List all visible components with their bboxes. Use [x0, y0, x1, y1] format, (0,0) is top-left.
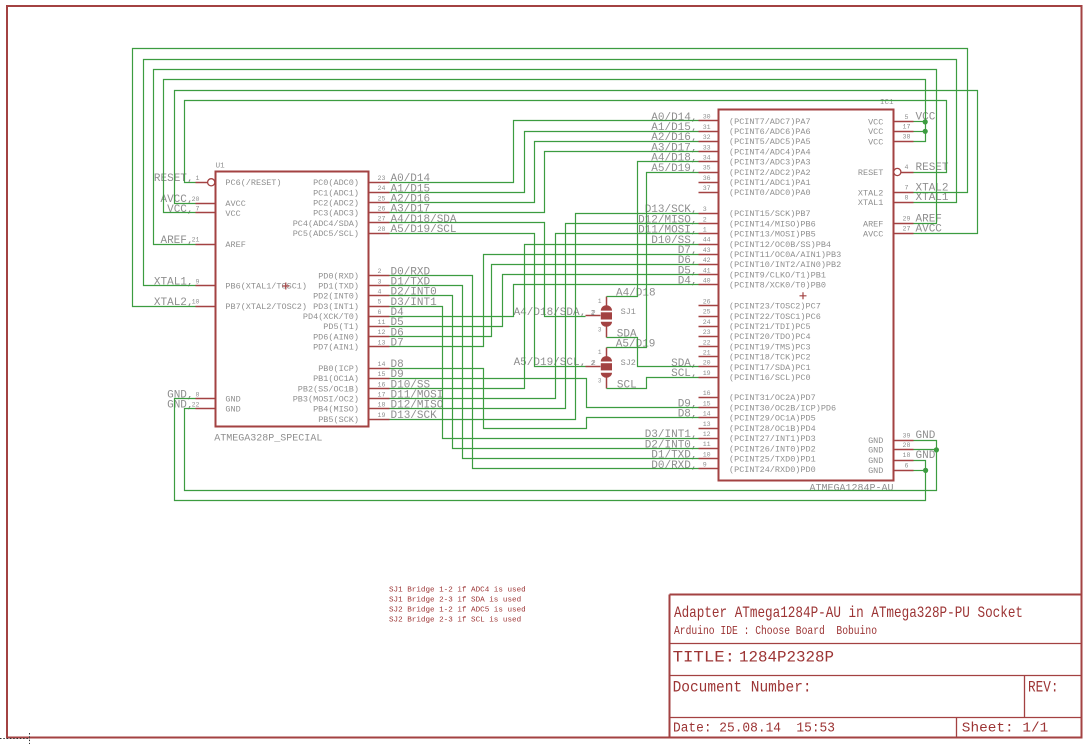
svg-text:24: 24	[378, 185, 386, 192]
svg-text:PD2(INT0): PD2(INT0)	[313, 292, 359, 302]
svg-text:Date: 25.08.14 15:53: Date: 25.08.14 15:53	[673, 722, 835, 737]
svg-text:PC3(ADC3): PC3(ADC3)	[313, 209, 359, 219]
svg-text:Sheet: 1/1: Sheet: 1/1	[962, 722, 1049, 737]
svg-text:26: 26	[703, 299, 711, 306]
svg-text:(PCINT29/OC1A)PD5: (PCINT29/OC1A)PD5	[729, 414, 816, 424]
svg-text:RESET,: RESET,	[154, 173, 194, 185]
svg-text:VCC: VCC	[868, 137, 883, 147]
svg-text:(PCINT2/ADC2)PA2: (PCINT2/ADC2)PA2	[729, 168, 811, 178]
svg-text:2: 2	[703, 216, 707, 223]
svg-text:28: 28	[378, 226, 386, 233]
svg-text:XTAL2: XTAL2	[858, 188, 884, 198]
svg-text:22: 22	[703, 339, 711, 346]
svg-text:VCC: VCC	[868, 127, 883, 137]
svg-text:12: 12	[378, 329, 386, 336]
svg-text:(PCINT0/ADC0)PA0: (PCINT0/ADC0)PA0	[729, 188, 811, 198]
svg-text:A4/D18: A4/D18	[616, 287, 656, 299]
svg-text:SJ2 Bridge 2-3 if SCL is used: SJ2 Bridge 2-3 if SCL is used	[389, 616, 521, 624]
svg-text:13: 13	[703, 421, 711, 428]
svg-text:24: 24	[703, 319, 711, 326]
svg-text:(PCINT22/TOSC1)PC6: (PCINT22/TOSC1)PC6	[729, 312, 821, 322]
svg-text:34: 34	[703, 155, 711, 162]
svg-text:28: 28	[903, 442, 911, 449]
svg-text:11: 11	[703, 441, 711, 448]
svg-text:16: 16	[378, 381, 386, 388]
svg-text:5: 5	[905, 114, 909, 121]
svg-text:(PCINT8/XCK0/T0)PB0: (PCINT8/XCK0/T0)PB0	[729, 281, 826, 291]
svg-text:6: 6	[905, 462, 909, 469]
svg-text:(PCINT23/TOSC2)PC7: (PCINT23/TOSC2)PC7	[729, 302, 821, 312]
svg-text:GND: GND	[868, 456, 883, 466]
svg-text:44: 44	[703, 237, 711, 244]
svg-text:43: 43	[703, 247, 711, 254]
svg-text:2: 2	[592, 310, 596, 318]
svg-text:SCL,: SCL,	[671, 368, 697, 380]
svg-text:(PCINT10/INT2/AIN0)PB2: (PCINT10/INT2/AIN0)PB2	[729, 260, 841, 270]
svg-text:D4,: D4,	[678, 276, 698, 288]
svg-text:PD7(AIN1): PD7(AIN1)	[313, 343, 359, 353]
svg-text:PB3(MOSI/OC2): PB3(MOSI/OC2)	[293, 395, 359, 405]
svg-text:PB6(XTAL1/TOSC1): PB6(XTAL1/TOSC1)	[225, 282, 307, 292]
svg-text:XTAL1: XTAL1	[858, 198, 884, 208]
svg-text:11: 11	[378, 319, 386, 326]
svg-text:D0/RXD,: D0/RXD,	[651, 460, 697, 472]
svg-text:ATMEGA1284P-AU: ATMEGA1284P-AU	[809, 484, 893, 495]
svg-text:3: 3	[378, 278, 382, 285]
svg-text:13: 13	[378, 339, 386, 346]
svg-text:Document Number:: Document Number:	[673, 679, 812, 697]
svg-text:D7: D7	[391, 338, 404, 350]
svg-text:PC0(ADC0): PC0(ADC0)	[313, 178, 359, 188]
svg-text:23: 23	[703, 329, 711, 336]
svg-text:31: 31	[703, 124, 711, 131]
svg-text:1: 1	[598, 298, 602, 305]
svg-text:U1: U1	[216, 163, 226, 171]
svg-text:(PCINT9/CLKO/T1)PB1: (PCINT9/CLKO/T1)PB1	[729, 270, 826, 280]
svg-text:(PCINT6/ADC6)PA6: (PCINT6/ADC6)PA6	[729, 127, 811, 137]
svg-text:19: 19	[703, 370, 711, 377]
svg-text:PC4(ADC4/SDA): PC4(ADC4/SDA)	[293, 219, 359, 229]
svg-text:PC1(ADC1): PC1(ADC1)	[313, 188, 359, 198]
svg-text:SJ2 Bridge 1-2 if ADC5 is used: SJ2 Bridge 1-2 if ADC5 is used	[389, 606, 526, 614]
svg-text:5: 5	[378, 299, 382, 306]
svg-text:4: 4	[378, 289, 382, 296]
svg-text:PD5(T1): PD5(T1)	[323, 322, 359, 332]
svg-text:GND: GND	[225, 405, 240, 415]
svg-text:36: 36	[703, 175, 711, 182]
svg-text:VCC,: VCC,	[167, 204, 193, 216]
svg-text:SJ2: SJ2	[621, 358, 636, 368]
svg-text:10: 10	[703, 452, 711, 459]
svg-text:(PCINT26/INT0)PD2: (PCINT26/INT0)PD2	[729, 444, 816, 454]
svg-text:PD4(XCK/T0): PD4(XCK/T0)	[303, 312, 359, 322]
svg-text:19: 19	[378, 412, 386, 419]
svg-text:XTAL1,: XTAL1,	[154, 277, 194, 289]
svg-text:12: 12	[703, 431, 711, 438]
svg-text:PB4(MISO): PB4(MISO)	[313, 405, 359, 415]
svg-text:PB0(ICP): PB0(ICP)	[318, 364, 359, 374]
svg-text:PC5(ADC5/SCL): PC5(ADC5/SCL)	[293, 229, 359, 239]
svg-text:(PCINT1/ADC1)PA1: (PCINT1/ADC1)PA1	[729, 178, 811, 188]
svg-text:27: 27	[903, 226, 911, 233]
svg-text:PD0(RXD): PD0(RXD)	[318, 271, 359, 281]
svg-text:16: 16	[703, 390, 711, 397]
svg-text:PD1(TXD): PD1(TXD)	[318, 282, 359, 292]
svg-text:3: 3	[598, 327, 602, 334]
svg-text:GND: GND	[868, 436, 883, 446]
svg-text:9: 9	[196, 278, 200, 285]
svg-text:(PCINT30/OC2B/ICP)PD6: (PCINT30/OC2B/ICP)PD6	[729, 404, 836, 414]
svg-text:TITLE:: TITLE:	[673, 649, 736, 667]
svg-text:1: 1	[598, 349, 602, 356]
svg-text:(PCINT25/TXD0)PD1: (PCINT25/TXD0)PD1	[729, 455, 816, 465]
svg-text:17: 17	[903, 123, 911, 130]
svg-text:29: 29	[903, 216, 911, 223]
svg-text:ATMEGA328P_SPECIAL: ATMEGA328P_SPECIAL	[214, 434, 322, 445]
svg-text:39: 39	[903, 432, 911, 439]
svg-text:(PCINT14/MISO)PB6: (PCINT14/MISO)PB6	[729, 219, 816, 229]
svg-text:38: 38	[903, 134, 911, 141]
svg-text:PB1(OC1A): PB1(OC1A)	[313, 374, 359, 384]
svg-text:3: 3	[703, 206, 707, 213]
svg-text:(PCINT18/TCK)PC2: (PCINT18/TCK)PC2	[729, 353, 811, 363]
svg-text:GND: GND	[868, 466, 883, 476]
svg-text:40: 40	[703, 278, 711, 285]
svg-text:SJ1: SJ1	[621, 307, 636, 317]
svg-text:GND: GND	[225, 394, 240, 404]
svg-text:35: 35	[703, 165, 711, 172]
svg-text:(PCINT5/ADC5)PA5: (PCINT5/ADC5)PA5	[729, 137, 811, 147]
svg-text:(PCINT15/SCK)PB7: (PCINT15/SCK)PB7	[729, 209, 811, 219]
svg-text:(PCINT19/TMS)PC3: (PCINT19/TMS)PC3	[729, 342, 811, 352]
svg-text:(PCINT13/MOSI)PB5: (PCINT13/MOSI)PB5	[729, 230, 816, 240]
svg-text:AVCC: AVCC	[225, 199, 245, 209]
svg-text:20: 20	[703, 360, 711, 367]
svg-text:Adapter ATmega1284P-AU in ATme: Adapter ATmega1284P-AU in ATmega328P-PU …	[674, 604, 1023, 622]
svg-text:4: 4	[905, 164, 909, 171]
svg-text:15: 15	[703, 400, 711, 407]
svg-text:15: 15	[378, 371, 386, 378]
svg-text:(PCINT17/SDA)PC1: (PCINT17/SDA)PC1	[729, 363, 811, 373]
svg-text:17: 17	[378, 391, 386, 398]
svg-text:(PCINT24/RXD0)PD0: (PCINT24/RXD0)PD0	[729, 465, 816, 475]
svg-text:2: 2	[378, 268, 382, 275]
svg-text:(PCINT11/OC0A/AIN1)PB3: (PCINT11/OC0A/AIN1)PB3	[729, 250, 841, 260]
svg-text:37: 37	[703, 185, 711, 192]
svg-text:18: 18	[378, 402, 386, 409]
svg-text:PB5(SCK): PB5(SCK)	[318, 415, 359, 425]
svg-text:(PCINT4/ADC4)PA4: (PCINT4/ADC4)PA4	[729, 147, 811, 157]
svg-text:2: 2	[592, 360, 596, 368]
svg-text:25: 25	[703, 309, 711, 316]
svg-text:1: 1	[703, 227, 707, 234]
svg-text:42: 42	[703, 257, 711, 264]
svg-text:8: 8	[905, 194, 909, 201]
svg-text:GND,: GND,	[167, 400, 193, 412]
svg-text:32: 32	[703, 134, 711, 141]
svg-text:25: 25	[378, 195, 386, 202]
svg-text:(PCINT20/TDO)PC4: (PCINT20/TDO)PC4	[729, 332, 811, 342]
svg-text:REV:: REV:	[1028, 678, 1059, 696]
svg-text:9: 9	[703, 462, 707, 469]
svg-text:PC2(ADC2): PC2(ADC2)	[313, 198, 359, 208]
svg-text:PC6(/RESET): PC6(/RESET)	[225, 178, 281, 188]
svg-text:(PCINT27/INT1)PD3: (PCINT27/INT1)PD3	[729, 434, 816, 444]
svg-text:(PCINT31/OC2A)PD7: (PCINT31/OC2A)PD7	[729, 393, 816, 403]
svg-text:7: 7	[196, 206, 200, 213]
svg-text:Arduino IDE : Choose Board Bo: Arduino IDE : Choose Board Bobuino	[674, 624, 877, 638]
svg-text:(PCINT16/SCL)PC0: (PCINT16/SCL)PC0	[729, 373, 811, 383]
svg-text:27: 27	[378, 216, 386, 223]
svg-text:D8,: D8,	[678, 409, 698, 421]
svg-text:8: 8	[196, 391, 200, 398]
svg-text:(PCINT12/OC0B/SS)PB4: (PCINT12/OC0B/SS)PB4	[729, 240, 831, 250]
svg-text:A5/D19: A5/D19	[616, 338, 656, 350]
svg-text:18: 18	[903, 452, 911, 459]
svg-text:(PCINT3/ADC3)PA3: (PCINT3/ADC3)PA3	[729, 158, 811, 168]
svg-text:RESET: RESET	[858, 168, 884, 178]
svg-text:AREF: AREF	[225, 240, 245, 250]
svg-text:33: 33	[703, 144, 711, 151]
svg-text:VCC: VCC	[225, 209, 240, 219]
svg-text:SCL: SCL	[617, 379, 637, 391]
svg-text:SJ1 Bridge 2-3 if SDA is used: SJ1 Bridge 2-3 if SDA is used	[389, 596, 521, 604]
svg-text:AVCC: AVCC	[863, 229, 883, 239]
svg-text:PB2(SS/OC1B): PB2(SS/OC1B)	[298, 384, 359, 394]
svg-text:1284P2328P: 1284P2328P	[739, 649, 834, 667]
svg-text:30: 30	[703, 114, 711, 121]
svg-text:(PCINT7/ADC7)PA7: (PCINT7/ADC7)PA7	[729, 117, 811, 127]
svg-text:AREF: AREF	[863, 219, 883, 229]
svg-text:(PCINT28/OC1B)PD4: (PCINT28/OC1B)PD4	[729, 424, 816, 434]
svg-text:PD3(INT1): PD3(INT1)	[313, 302, 359, 312]
svg-text:(PCINT21/TDI)PC5: (PCINT21/TDI)PC5	[729, 322, 811, 332]
svg-text:23: 23	[378, 175, 386, 182]
svg-text:26: 26	[378, 206, 386, 213]
svg-text:3: 3	[598, 378, 602, 385]
svg-text:6: 6	[378, 309, 382, 316]
svg-text:1: 1	[196, 175, 200, 182]
svg-text:14: 14	[703, 411, 711, 418]
svg-text:41: 41	[703, 267, 711, 274]
svg-text:PB7(XTAL2/TOSC2): PB7(XTAL2/TOSC2)	[225, 302, 307, 312]
svg-text:7: 7	[905, 185, 909, 192]
svg-text:21: 21	[703, 350, 711, 357]
svg-text:14: 14	[378, 361, 386, 368]
svg-text:GND: GND	[868, 446, 883, 456]
svg-text:SJ1 Bridge 1-2 if ADC4 is used: SJ1 Bridge 1-2 if ADC4 is used	[389, 586, 526, 594]
svg-text:PD6(AIN0): PD6(AIN0)	[313, 332, 359, 342]
